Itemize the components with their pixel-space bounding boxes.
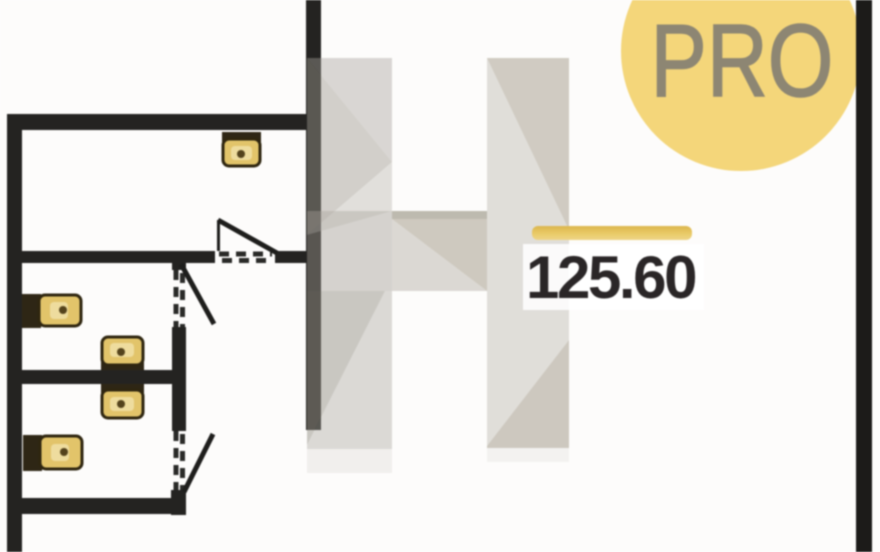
svg-text:125.60: 125.60	[526, 244, 695, 311]
svg-text:PRO: PRO	[650, 3, 833, 118]
